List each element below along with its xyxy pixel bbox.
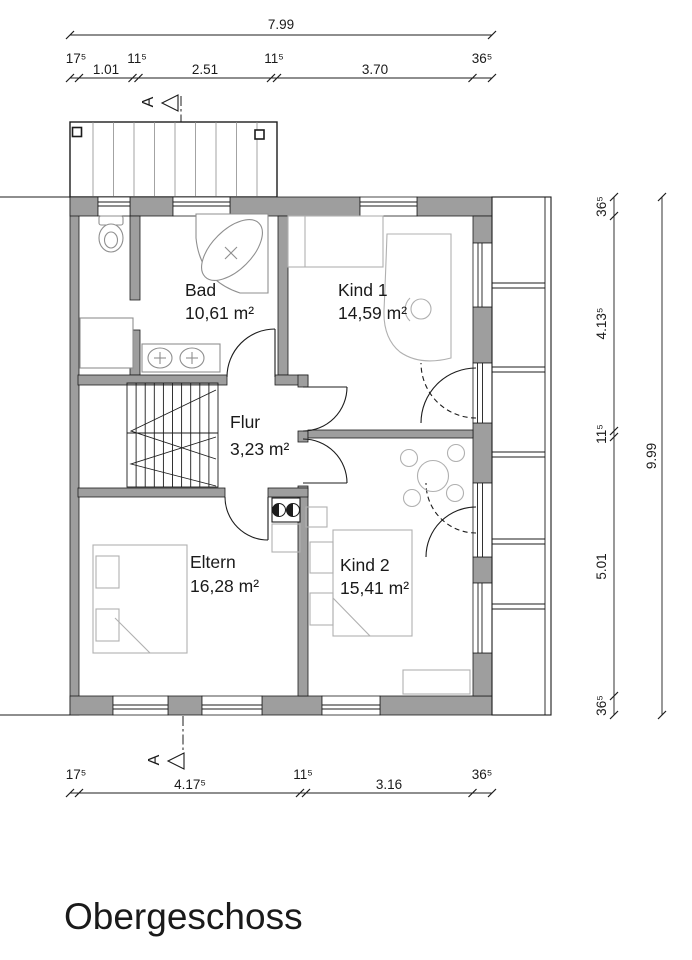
dim-top-seg-4: 11⁵ — [264, 51, 284, 66]
dim-top-overall: 7.99 — [268, 17, 294, 32]
floor-plan-page: 7.99 17⁵ 1.01 11⁵ 2.51 11⁵ 3.70 36⁵ A — [0, 0, 692, 960]
room-area-kind1: 14,59 m² — [338, 303, 407, 323]
floor-plan-canvas: 7.99 17⁵ 1.01 11⁵ 2.51 11⁵ 3.70 36⁵ A — [0, 0, 692, 960]
dim-right-seg-3: 5.01 — [594, 553, 609, 579]
chair-icon — [447, 485, 464, 502]
bed-icon — [288, 216, 383, 267]
section-arrow-icon — [162, 95, 178, 111]
section-letter-top: A — [140, 96, 157, 107]
nightstand-icon — [310, 593, 333, 625]
furniture-eltern — [93, 545, 187, 653]
dim-right-seg-2: 11⁵ — [594, 424, 609, 444]
dim-top-seg-1: 1.01 — [93, 62, 119, 77]
bathroom-fixtures — [80, 209, 273, 372]
chair-icon — [411, 299, 431, 319]
room-label-eltern: Eltern — [190, 552, 236, 572]
dim-top-seg-5: 3.70 — [362, 62, 388, 77]
chair-icon — [448, 445, 465, 462]
double-sink-vanity-icon — [142, 344, 220, 372]
room-area-eltern: 16,28 m² — [190, 576, 259, 596]
dimension-line-top: 7.99 17⁵ 1.01 11⁵ 2.51 11⁵ 3.70 36⁵ — [66, 17, 496, 82]
dim-right-seg-0: 36⁵ — [594, 196, 609, 217]
pillow-icon — [96, 609, 119, 641]
dim-bottom-seg-4: 36⁵ — [472, 767, 493, 782]
dim-top-seg-0: 17⁵ — [66, 51, 87, 66]
window-kind2-bottom — [322, 696, 380, 715]
dim-right-seg-1: 4.13⁵ — [594, 308, 609, 340]
room-label-kind2: Kind 2 — [340, 555, 390, 575]
balcony — [492, 197, 551, 715]
wall-left — [70, 197, 79, 715]
cupboard-icon — [272, 524, 300, 552]
dim-bottom-seg-0: 17⁵ — [66, 767, 87, 782]
section-marker-bottom: A — [146, 716, 184, 769]
pillow-icon — [96, 556, 119, 588]
room-labels: Bad 10,61 m² Kind 1 14,59 m² Flur 3,23 m… — [185, 280, 409, 598]
dim-top-seg-3: 2.51 — [192, 62, 218, 77]
stair-direction-line — [131, 390, 216, 459]
window-eltern-2 — [202, 696, 262, 715]
room-area-bad: 10,61 m² — [185, 303, 254, 323]
door-kind2 — [303, 439, 347, 483]
stairs — [127, 383, 218, 487]
toilet-icon — [99, 216, 123, 252]
window-bad — [173, 197, 230, 216]
round-table-icon — [418, 461, 449, 492]
party-wall-lines — [0, 197, 70, 715]
page-title: Obergeschoss — [64, 896, 303, 937]
door-eltern — [225, 497, 268, 540]
dim-right-overall: 9.99 — [644, 443, 659, 469]
door-bad — [227, 329, 275, 377]
desk-icon — [384, 234, 451, 361]
terrace-post-icon — [255, 130, 264, 139]
chair-icon — [404, 490, 421, 507]
window-kind1-right — [473, 243, 492, 307]
dimension-line-right: 36⁵ 4.13⁵ 11⁵ 5.01 36⁵ 9.99 — [594, 193, 666, 719]
double-bed-icon — [93, 545, 187, 653]
balcony-door-kind1 — [421, 363, 492, 423]
terrace-post-icon — [73, 128, 82, 137]
balcony-door-kind2 — [426, 483, 492, 557]
dim-top-seg-2: 11⁵ — [127, 51, 147, 66]
shelf-icon — [306, 507, 327, 527]
dresser-icon — [403, 670, 470, 694]
dimension-line-bottom: 17⁵ 4.17⁵ 11⁵ 3.16 36⁵ — [66, 767, 496, 797]
terrace — [70, 122, 277, 197]
room-area-kind2: 15,41 m² — [340, 578, 409, 598]
window-wc — [98, 197, 130, 216]
cooktop-niche — [272, 498, 300, 552]
section-letter-bottom: A — [146, 754, 163, 765]
dim-right-seg-4: 36⁵ — [594, 695, 609, 716]
shower-tray-icon — [80, 318, 133, 368]
dim-bottom-seg-3: 3.16 — [376, 777, 402, 792]
nightstand-icon — [310, 542, 333, 573]
dim-top-seg-6: 36⁵ — [472, 51, 493, 66]
room-label-flur: Flur — [230, 412, 260, 432]
window-kind1-top — [360, 197, 417, 216]
door-kind1 — [303, 387, 347, 431]
room-area-flur: 3,23 m² — [230, 439, 289, 459]
dim-bottom-seg-2: 11⁵ — [293, 767, 313, 782]
window-kind2-right — [473, 583, 492, 653]
room-label-kind1: Kind 1 — [338, 280, 388, 300]
stair-direction-line — [131, 437, 216, 486]
window-eltern-1 — [113, 696, 168, 715]
chair-icon — [401, 450, 418, 467]
room-label-bad: Bad — [185, 280, 216, 300]
section-arrow-icon — [168, 753, 184, 769]
dim-bottom-seg-1: 4.17⁵ — [174, 777, 206, 792]
